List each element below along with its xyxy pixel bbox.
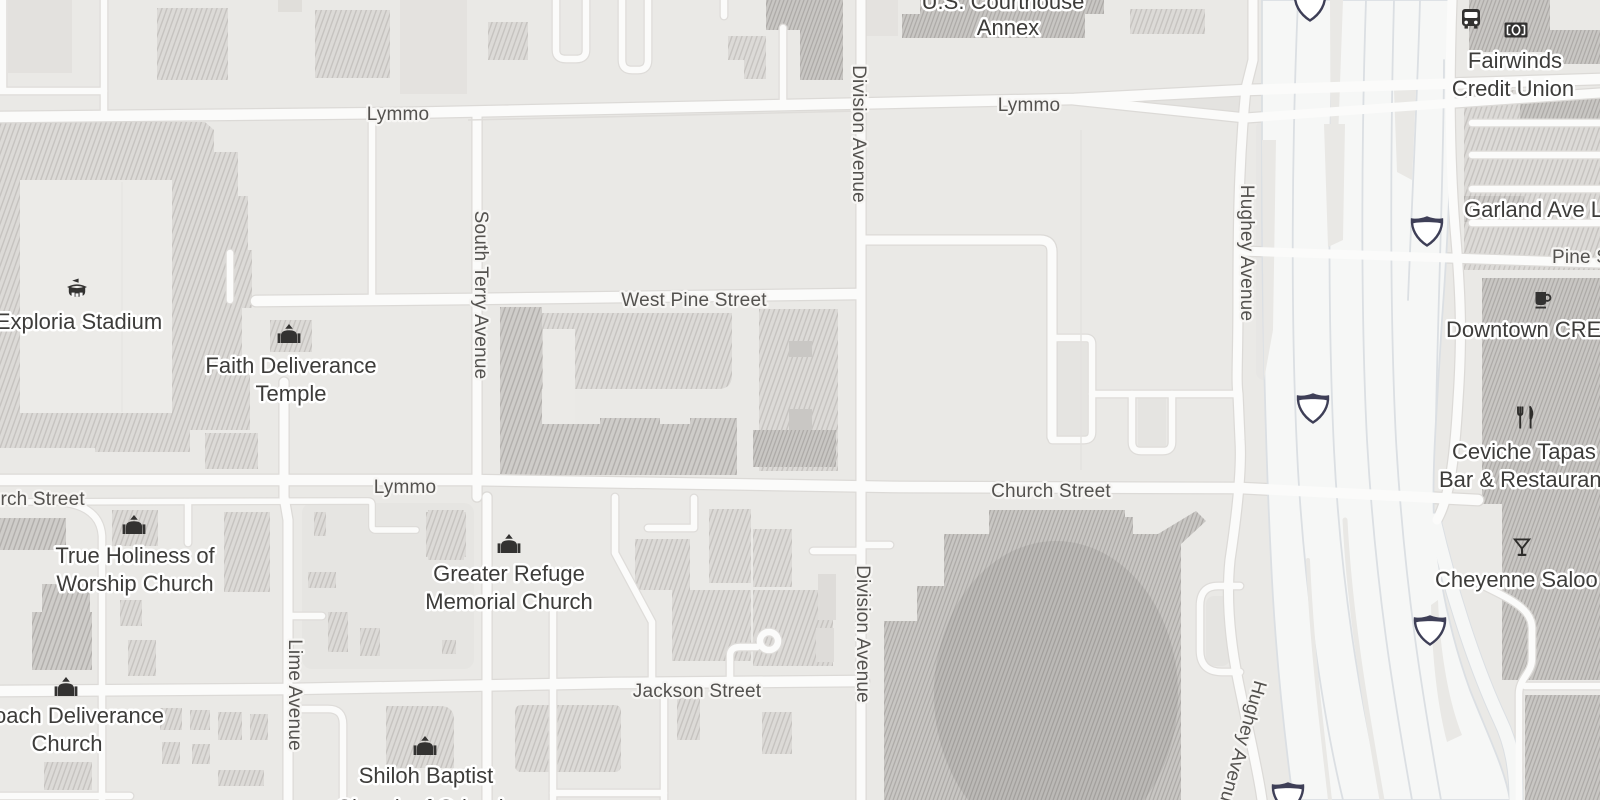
svg-text:Fairwinds: Fairwinds: [1468, 48, 1562, 73]
svg-text:Shiloh Baptist: Shiloh Baptist: [359, 763, 494, 788]
svg-text:Ceviche Tapas: Ceviche Tapas: [1452, 439, 1596, 464]
svg-text:Exploria Stadium: Exploria Stadium: [0, 309, 162, 334]
svg-text:Church of Orlando: Church of Orlando: [336, 795, 516, 800]
svg-text:True Holiness of: True Holiness of: [55, 543, 215, 568]
svg-text:Garland Ave L: Garland Ave L: [1464, 197, 1600, 222]
svg-text:Hughey Avenue: Hughey Avenue: [1236, 185, 1257, 321]
svg-text:West Pine Street: West Pine Street: [621, 290, 767, 311]
svg-text:Memorial Church: Memorial Church: [425, 589, 593, 614]
svg-text:Faith Deliverance: Faith Deliverance: [205, 353, 376, 378]
svg-text:Worship Church: Worship Church: [56, 571, 213, 596]
svg-text:Jackson Street: Jackson Street: [633, 681, 762, 702]
svg-text:Church: Church: [32, 731, 103, 756]
svg-text:Division Avenue: Division Avenue: [852, 565, 873, 703]
svg-text:Greater Refuge: Greater Refuge: [433, 561, 585, 586]
svg-text:Division Avenue: Division Avenue: [848, 65, 869, 203]
svg-text:Bar & Restauran: Bar & Restauran: [1439, 467, 1600, 492]
svg-text:Church Street: Church Street: [991, 481, 1111, 502]
svg-text:Lymmo: Lymmo: [374, 477, 437, 498]
svg-text:Annex: Annex: [977, 15, 1039, 40]
svg-text:oach Deliverance: oach Deliverance: [0, 703, 164, 728]
svg-text:Lime Avenue: Lime Avenue: [284, 639, 305, 751]
svg-text:Cheyenne Saloo: Cheyenne Saloo: [1435, 567, 1598, 592]
svg-text:Downtown CRE: Downtown CRE: [1446, 317, 1600, 342]
svg-text:Church Street: Church Street: [0, 489, 85, 510]
svg-text:South Terry Avenue: South Terry Avenue: [470, 211, 491, 380]
svg-text:Lymmo: Lymmo: [367, 104, 430, 125]
svg-text:Pine S: Pine S: [1552, 247, 1600, 268]
svg-text:Temple: Temple: [256, 381, 327, 406]
svg-text:Lymmo: Lymmo: [998, 95, 1061, 116]
svg-text:U.S. Courthouse: U.S. Courthouse: [922, 0, 1085, 14]
svg-text:Credit Union: Credit Union: [1452, 76, 1574, 101]
